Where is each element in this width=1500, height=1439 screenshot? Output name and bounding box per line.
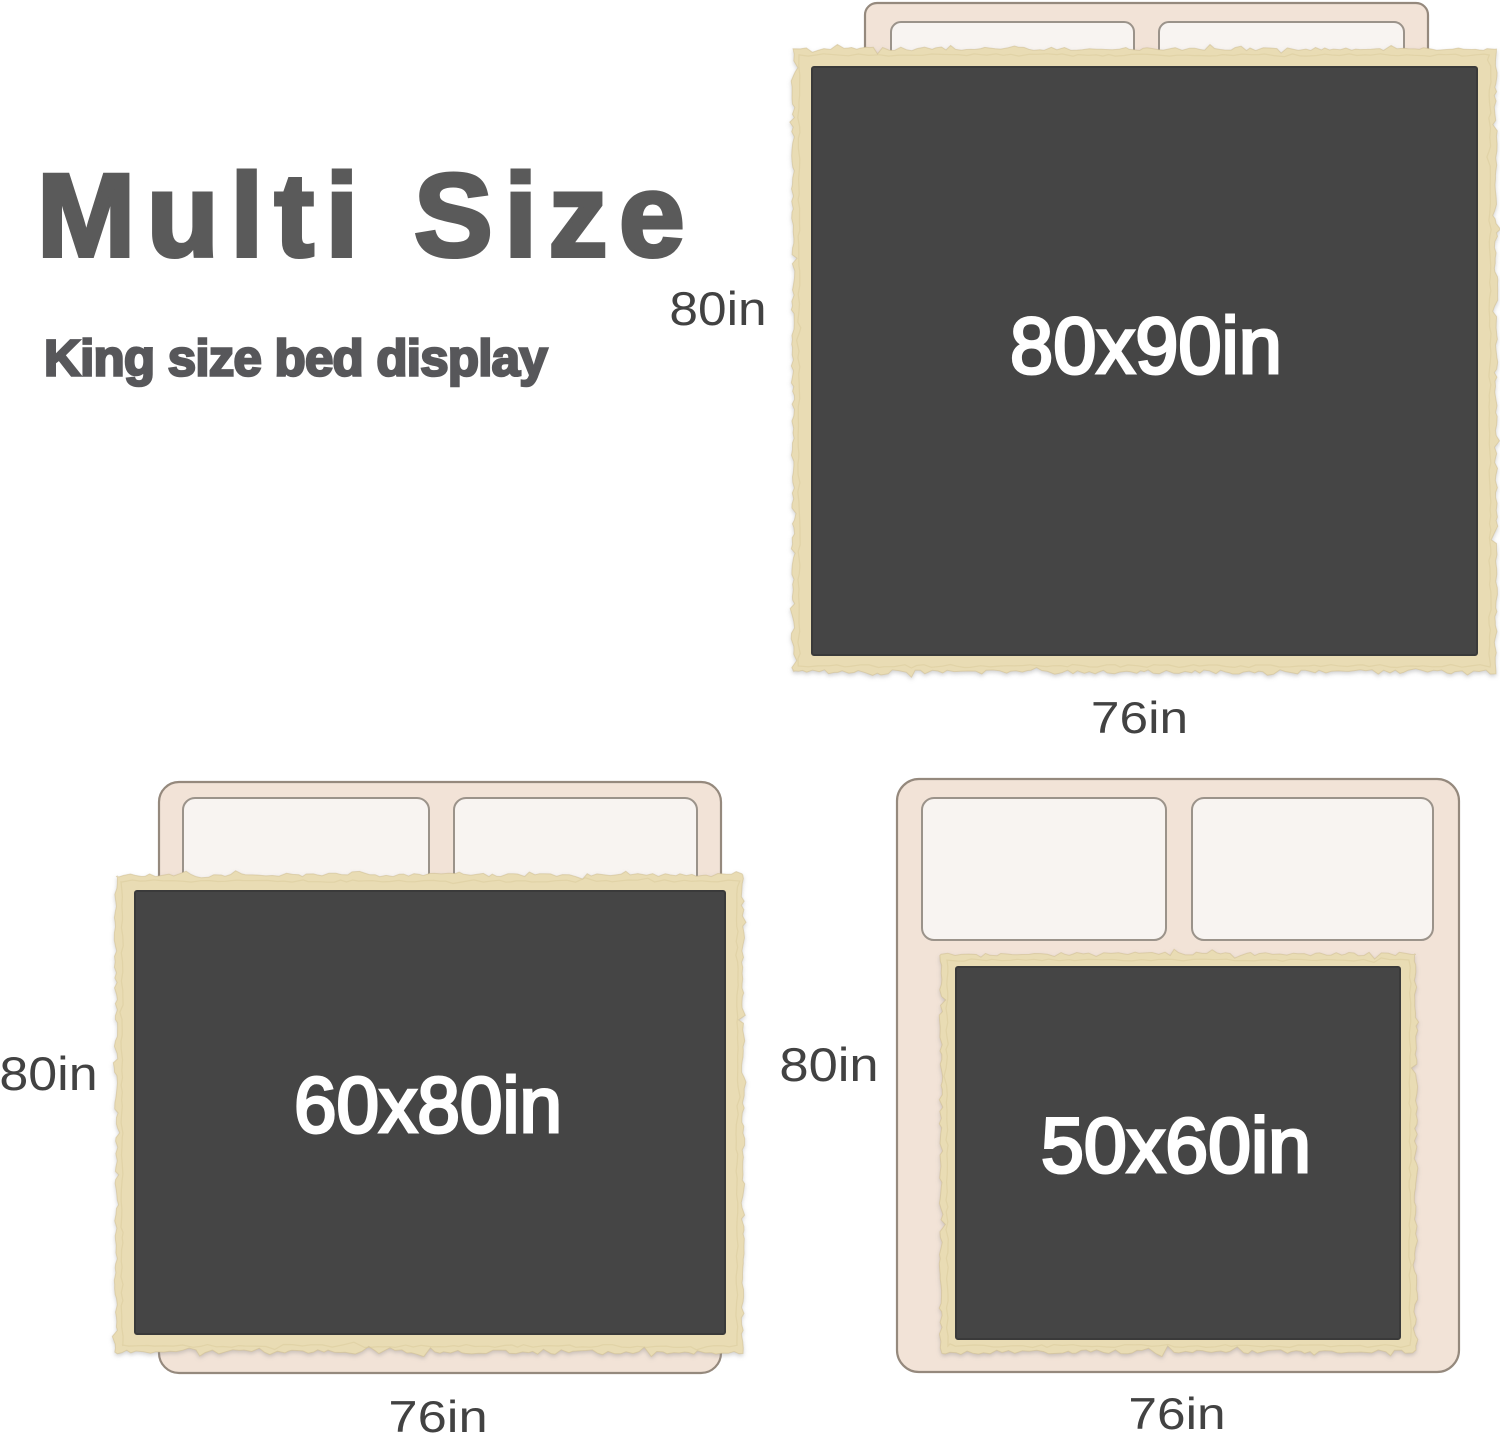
svg-text:76in: 76in xyxy=(1128,1389,1225,1434)
svg-text:80x90in: 80x90in xyxy=(1010,301,1282,390)
svg-text:60x80in: 60x80in xyxy=(294,1062,562,1149)
svg-text:80in: 80in xyxy=(669,283,766,336)
svg-text:Multi Size: Multi Size xyxy=(37,150,696,282)
svg-text:80in: 80in xyxy=(779,1038,878,1091)
svg-text:76in: 76in xyxy=(1091,693,1188,743)
svg-text:King size bed display: King size bed display xyxy=(44,329,548,386)
svg-text:76in: 76in xyxy=(388,1393,487,1434)
svg-text:50x60in: 50x60in xyxy=(1041,1102,1311,1189)
svg-text:80in: 80in xyxy=(0,1047,98,1100)
